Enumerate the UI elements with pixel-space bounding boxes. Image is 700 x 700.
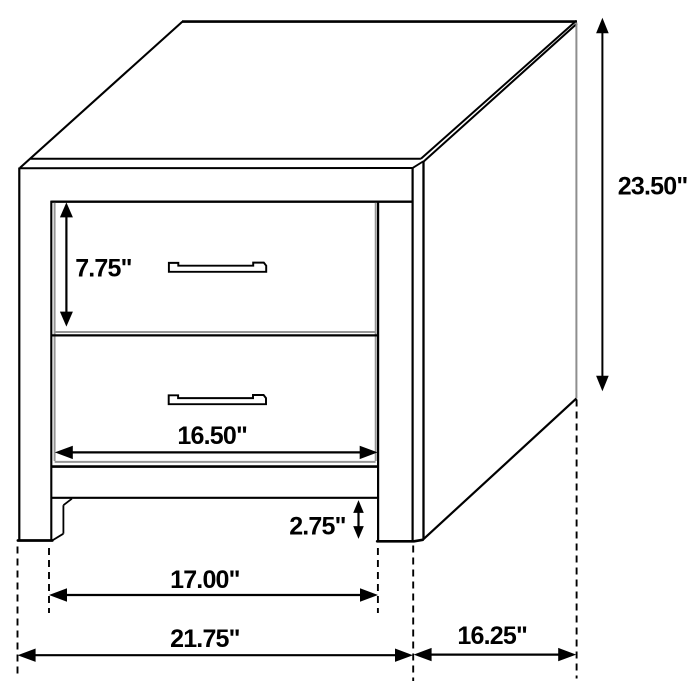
svg-text:16.25": 16.25" — [457, 622, 527, 650]
svg-text:7.75": 7.75" — [75, 254, 132, 282]
svg-text:21.75": 21.75" — [170, 625, 240, 653]
svg-text:23.50": 23.50" — [618, 173, 688, 201]
svg-text:2.75": 2.75" — [289, 512, 346, 540]
svg-text:17.00": 17.00" — [170, 566, 240, 594]
svg-text:16.50": 16.50" — [177, 422, 247, 450]
